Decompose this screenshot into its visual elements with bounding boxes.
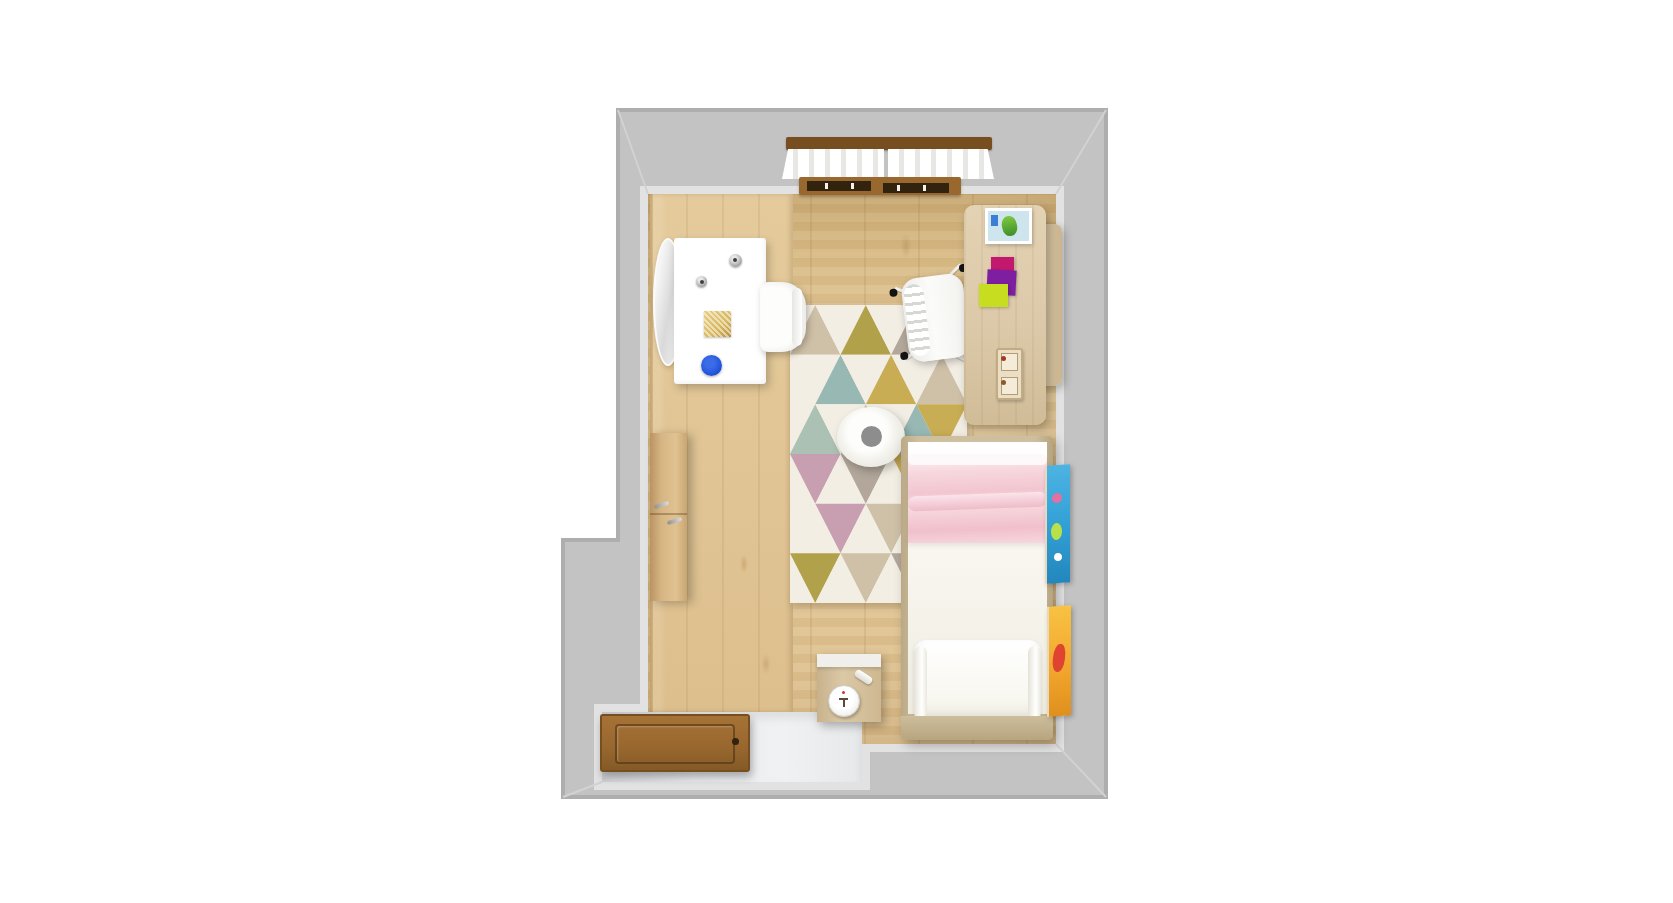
- picture-blue-shape: [991, 215, 998, 226]
- room-render-canvas: [0, 0, 1673, 903]
- poster-blue[interactable]: [1045, 464, 1070, 584]
- paper-lime[interactable]: [979, 284, 1008, 307]
- desk-picture[interactable]: [985, 208, 1032, 244]
- nightstand-top: [817, 654, 881, 667]
- wardrobe[interactable]: [650, 433, 687, 601]
- poster-red-figure: [1051, 644, 1066, 673]
- vanity-item-round-small: [696, 276, 707, 287]
- pouf[interactable]: [837, 407, 905, 467]
- bed[interactable]: [901, 436, 1053, 740]
- desk-organizer[interactable]: [996, 348, 1023, 400]
- wardrobe-handle-icon: [654, 501, 670, 509]
- clock-hand: [839, 698, 848, 700]
- window-frame-top: [786, 137, 992, 150]
- nightstand[interactable]: [817, 654, 881, 722]
- poster-orange[interactable]: [1047, 605, 1071, 717]
- door-open[interactable]: [600, 714, 750, 772]
- vanity-chair[interactable]: [760, 282, 806, 352]
- pillow-roll: [914, 646, 927, 718]
- window-curtain-right[interactable]: [888, 149, 994, 179]
- nightstand-small-item: [853, 668, 873, 685]
- window-curtain-left[interactable]: [782, 149, 884, 179]
- vanity-item-round: [729, 254, 742, 267]
- picture-green-figure: [1000, 215, 1018, 237]
- poster-shape: [1052, 493, 1062, 504]
- alarm-clock-icon: [828, 685, 860, 717]
- clock-tick: [842, 691, 845, 694]
- bed-pillow: [914, 640, 1041, 724]
- vanity-desk[interactable]: [674, 238, 766, 384]
- wardrobe-door-split: [650, 513, 687, 515]
- gold-jewelry-box: [704, 311, 731, 337]
- bed-sheet-fold: [908, 454, 1047, 465]
- door-panel: [615, 724, 735, 764]
- door-knob-icon: [732, 738, 739, 745]
- window-pane-left: [807, 181, 871, 191]
- organizer-item-dot: [1001, 356, 1006, 361]
- pillow-roll: [1028, 646, 1041, 718]
- poster-shape: [1051, 523, 1062, 541]
- pouf-center-button: [861, 426, 882, 447]
- window-pane-right: [883, 183, 949, 193]
- chair-wheel-icon: [889, 288, 898, 297]
- wardrobe-handle-icon: [667, 517, 683, 525]
- bed-headboard: [901, 716, 1053, 740]
- blue-cup-item: [701, 355, 722, 376]
- organizer-item-dot: [1001, 380, 1006, 385]
- window-sash[interactable]: [799, 177, 961, 195]
- poster-shape: [1054, 553, 1062, 562]
